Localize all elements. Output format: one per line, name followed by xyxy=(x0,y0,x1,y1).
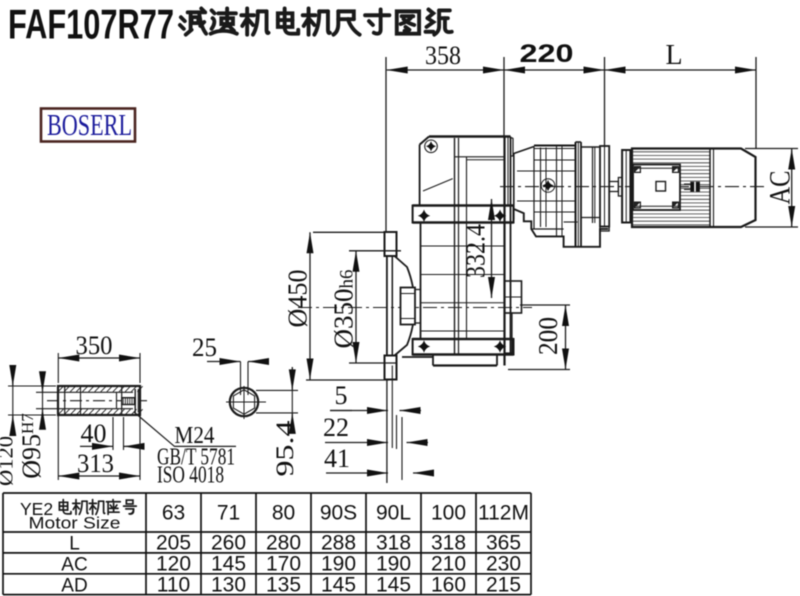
svg-text:170: 170 xyxy=(266,552,301,575)
svg-text:358: 358 xyxy=(425,41,461,70)
svg-text:41: 41 xyxy=(324,444,350,473)
svg-text:220: 220 xyxy=(520,40,574,68)
svg-text:Motor Size: Motor Size xyxy=(29,515,121,533)
svg-text:318: 318 xyxy=(376,532,411,555)
svg-text:260: 260 xyxy=(211,532,246,555)
svg-text:190: 190 xyxy=(321,552,356,575)
svg-text:135: 135 xyxy=(266,573,301,596)
svg-text:318: 318 xyxy=(431,532,466,555)
svg-text:90S: 90S xyxy=(320,502,357,525)
svg-text:BOSERL: BOSERL xyxy=(47,107,132,142)
svg-text:80: 80 xyxy=(272,502,295,525)
svg-text:AD: AD xyxy=(61,575,87,596)
svg-text:215: 215 xyxy=(486,573,521,596)
svg-text:200: 200 xyxy=(533,317,563,355)
svg-text:L: L xyxy=(69,534,80,555)
svg-text:145: 145 xyxy=(376,573,411,596)
svg-text:L: L xyxy=(665,40,682,71)
svg-text:110: 110 xyxy=(157,573,190,596)
svg-text:313: 313 xyxy=(77,449,114,478)
svg-text:112M: 112M xyxy=(478,502,529,525)
svg-text:120: 120 xyxy=(156,552,191,575)
svg-text:71: 71 xyxy=(217,502,240,525)
svg-text:ISO 4018: ISO 4018 xyxy=(157,463,224,489)
svg-text:145: 145 xyxy=(211,552,246,575)
svg-text:230: 230 xyxy=(486,552,521,575)
svg-text:130: 130 xyxy=(211,573,246,596)
svg-text:365: 365 xyxy=(486,532,521,555)
svg-text:Ø120: Ø120 xyxy=(0,436,18,486)
svg-text:22: 22 xyxy=(323,413,349,442)
svg-text:332.4: 332.4 xyxy=(461,224,491,278)
svg-text:25: 25 xyxy=(192,333,217,362)
svg-text:AC: AC xyxy=(61,554,87,575)
svg-text:205: 205 xyxy=(156,532,191,555)
svg-text:40: 40 xyxy=(81,419,107,448)
svg-text:90L: 90L xyxy=(376,502,411,525)
svg-text:190: 190 xyxy=(376,552,411,575)
svg-text:63: 63 xyxy=(162,502,185,525)
svg-text:95.4: 95.4 xyxy=(272,420,299,477)
svg-text:288: 288 xyxy=(321,532,356,555)
svg-text:210: 210 xyxy=(431,552,466,575)
svg-text:350: 350 xyxy=(76,331,113,360)
svg-text:AC: AC xyxy=(764,171,797,205)
svg-text:160: 160 xyxy=(431,573,466,596)
svg-text:100: 100 xyxy=(431,502,466,525)
svg-text:FAF107R77: FAF107R77 xyxy=(8,1,174,48)
svg-text:5: 5 xyxy=(335,381,348,410)
svg-text:280: 280 xyxy=(266,532,301,555)
svg-text:145: 145 xyxy=(321,573,356,596)
svg-text:Ø450: Ø450 xyxy=(283,270,313,328)
